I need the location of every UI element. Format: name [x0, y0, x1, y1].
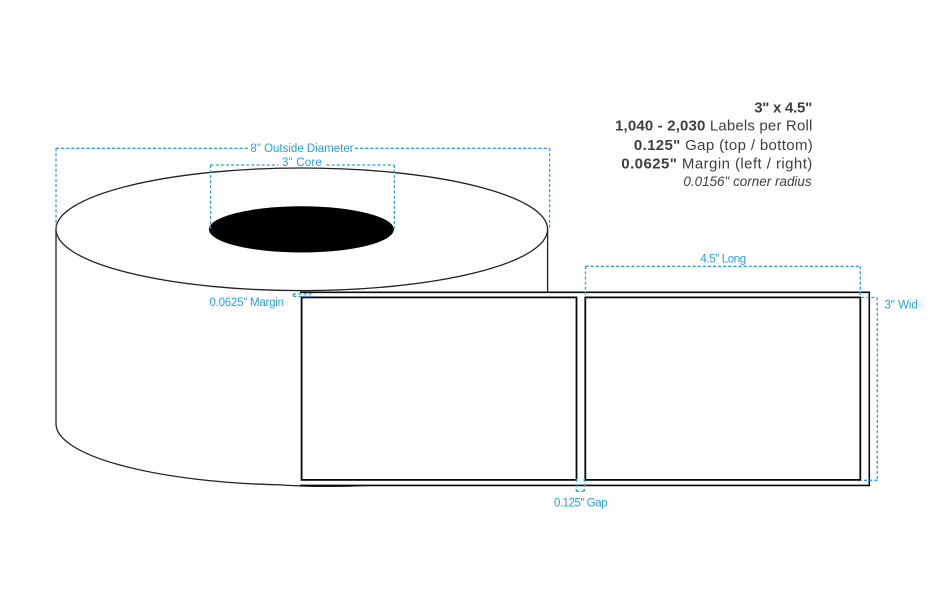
- svg-text:3" Wide: 3" Wide: [884, 299, 924, 311]
- svg-text:3" Core: 3" Core: [282, 157, 322, 169]
- svg-text:0.0625" Margin (left / right): 0.0625" Margin (left / right): [621, 156, 812, 173]
- svg-text:8" Outside Diameter: 8" Outside Diameter: [250, 143, 353, 155]
- svg-text:4.5" Long: 4.5" Long: [700, 253, 746, 265]
- svg-text:0.0625" Margin: 0.0625" Margin: [210, 297, 285, 309]
- svg-text:0.125" Gap (top / bottom): 0.125" Gap (top / bottom): [634, 137, 813, 154]
- svg-text:3" x 4.5": 3" x 4.5": [754, 100, 812, 117]
- svg-text:1,040 - 2,030 Labels per Roll: 1,040 - 2,030 Labels per Roll: [615, 118, 812, 135]
- svg-text:0.125" Gap: 0.125" Gap: [554, 497, 608, 509]
- svg-text:0.0156" corner radius: 0.0156" corner radius: [683, 174, 811, 189]
